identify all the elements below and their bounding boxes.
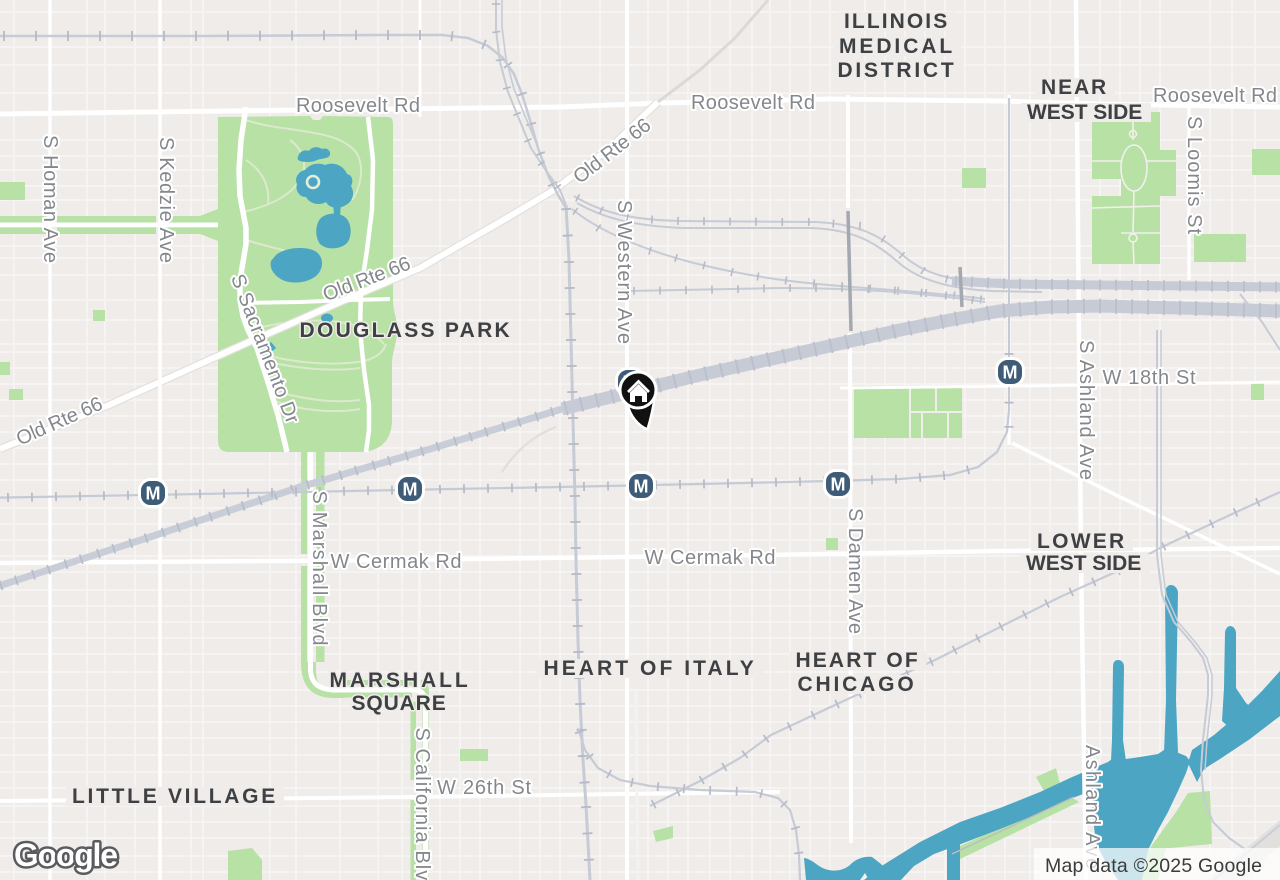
svg-text:LOWER: LOWER [1037,530,1127,553]
svg-text:CHICAGO: CHICAGO [798,673,917,696]
svg-text:LITTLE VILLAGE: LITTLE VILLAGE [72,785,278,808]
svg-text:DOUGLASS PARK: DOUGLASS PARK [300,319,513,342]
svg-text:SQUARE: SQUARE [352,692,449,715]
svg-text:Roosevelt Rd: Roosevelt Rd [1153,85,1277,107]
svg-text:S Damen Ave: S Damen Ave [844,508,866,634]
svg-text:W Cermak Rd: W Cermak Rd [331,551,462,573]
svg-text:S Homan Ave: S Homan Ave [39,135,61,263]
svg-text:HEART OF ITALY: HEART OF ITALY [544,657,757,680]
svg-text:NEAR: NEAR [1041,76,1109,99]
svg-text:DISTRICT: DISTRICT [838,59,957,82]
svg-text:Roosevelt Rd: Roosevelt Rd [296,95,420,117]
svg-text:ILLINOIS: ILLINOIS [844,10,950,33]
svg-text:S Western Ave: S Western Ave [613,200,635,344]
svg-text:HEART OF: HEART OF [796,649,921,672]
svg-text:W 18th St: W 18th St [1103,367,1196,389]
svg-text:M: M [634,477,649,497]
svg-text:M: M [831,475,846,495]
svg-text:S Kedzie Ave: S Kedzie Ave [155,137,177,263]
svg-text:MEDICAL: MEDICAL [839,35,955,58]
svg-text:M: M [403,480,418,500]
svg-text:S Ashland Ave: S Ashland Ave [1075,340,1097,480]
svg-text:S Loomis St: S Loomis St [1183,116,1205,234]
svg-text:M: M [1003,363,1018,383]
svg-text:S Marshall Blvd: S Marshall Blvd [308,491,330,646]
svg-text:S California Blvd: S California Blvd [411,728,433,880]
svg-text:Roosevelt Rd: Roosevelt Rd [691,92,815,114]
svg-text:MARSHALL: MARSHALL [330,669,471,692]
svg-text:W Cermak Rd: W Cermak Rd [645,547,776,569]
svg-text:WEST SIDE: WEST SIDE [1026,552,1144,575]
svg-text:M: M [146,484,161,504]
svg-text:Map data ©2025 Google: Map data ©2025 Google [1045,855,1262,877]
svg-text:WEST SIDE: WEST SIDE [1027,101,1145,124]
svg-text:W 26th St: W 26th St [437,777,531,799]
svg-text:Google: Google [14,837,118,873]
